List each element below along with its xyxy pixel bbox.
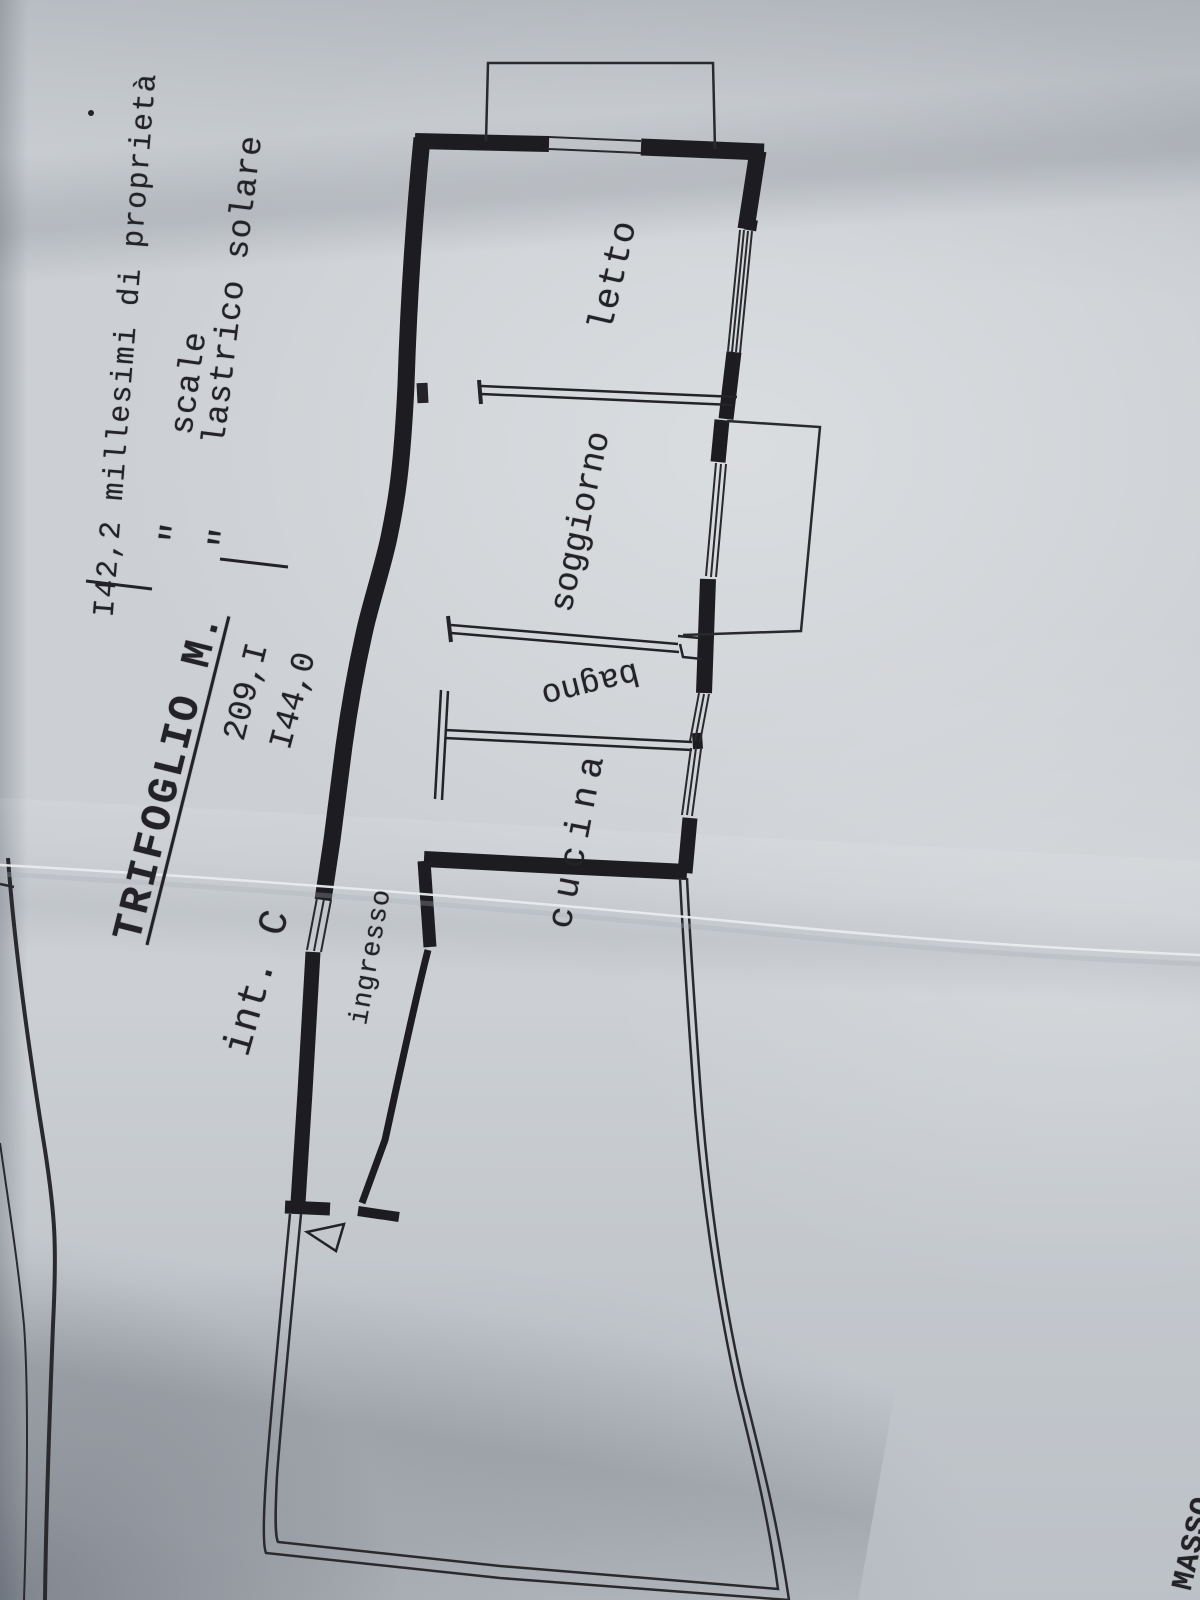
terrace-outline bbox=[264, 878, 789, 1600]
adjacent-drawing-lines bbox=[0, 858, 55, 1600]
ink-speck bbox=[88, 110, 94, 116]
fold-crease-line bbox=[0, 865, 1200, 964]
entrance-arrow-icon bbox=[307, 1224, 344, 1251]
scanned-floorplan-photo: I42,2 millesimi di proprietà TRIFOGLIO M… bbox=[0, 0, 1200, 1600]
